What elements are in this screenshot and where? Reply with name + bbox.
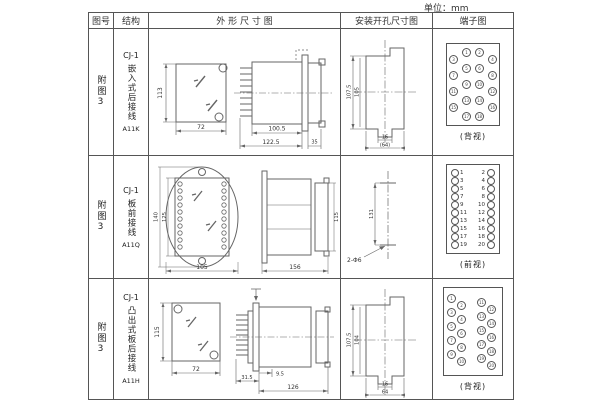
row1-code: A11K (123, 125, 140, 133)
row2-terminal-box: 1 3 5 7 9 11 13 15 17 19 2 4 6 8 10 12 1… (446, 164, 500, 254)
row2-code: A11Q (122, 241, 140, 249)
terminal-circle: 5 (462, 64, 471, 73)
terminal-circle (487, 209, 495, 217)
row2-outline-diagram: 140 125 105 156 115 (150, 157, 340, 278)
dim-height: 131 (369, 209, 375, 219)
row3-structure-cell: CJ-1 凸出式板后接线 A11H (114, 279, 149, 399)
row1-outline-diagram: 113 72 100.5 (150, 30, 340, 155)
row3-model: CJ-1 (123, 293, 139, 302)
row3-terminal-view-label: (背视) (460, 381, 486, 392)
dim-front-width: 72 (192, 366, 200, 373)
dim-outer-h: 140 (153, 212, 159, 222)
terminal-circle: 11 (449, 87, 458, 96)
row2-model: CJ-1 (123, 186, 139, 195)
row2-fig-no-cell: 附图3 (89, 156, 114, 279)
row3-code: A11H (122, 377, 140, 385)
row3-side-view (230, 289, 334, 371)
terminal-circle (451, 225, 459, 233)
terminal-circle: 15 (449, 103, 458, 112)
row1-structure-desc: 嵌入式后接线 (125, 64, 137, 121)
terminal-circle (487, 169, 495, 177)
terminal-circle: 8 (488, 71, 497, 80)
row1-side-view (234, 50, 332, 131)
row2-install-diagram: 131 2-Φ6 (342, 157, 432, 278)
terminal-circle: 16 (488, 103, 497, 112)
row1-model: CJ-1 (123, 51, 139, 60)
row2-side-view (262, 171, 329, 263)
header-fig-no: 图号 (89, 13, 114, 29)
terminal-circle: 20 (487, 361, 496, 370)
row3-outline-cell: 115 72 (149, 279, 341, 399)
terminal-circle: 2 (475, 48, 484, 57)
terminal-circle (451, 209, 459, 217)
terminal-circle: 18 (487, 347, 496, 356)
row2-terminal-cell: 1 3 5 7 9 11 13 15 17 19 2 4 6 8 10 12 1… (433, 156, 513, 279)
terminal-circle: 3 (447, 308, 456, 317)
terminal-circle: 18 (475, 112, 484, 121)
dim-outer-h: 107.5 (346, 84, 352, 99)
dim-body-len: 100.5 (268, 125, 285, 132)
terminal-circle (487, 193, 495, 201)
dim-bezel-depth: 35 (311, 139, 317, 145)
row3-structure-desc: 凸出式板后接线 (125, 306, 137, 373)
row1-outline-cell: 113 72 100.5 (149, 29, 341, 156)
document-page: 单位：mm 图号 结构 外 形 尺 寸 图 安装开孔尺寸图 端子图 附图3 CJ… (0, 0, 600, 400)
terminal-circle (487, 177, 495, 185)
terminal-circle (487, 233, 495, 241)
terminal-circle: 7 (447, 336, 456, 345)
terminal-circle (451, 201, 459, 209)
terminal-circle: 4 (457, 315, 466, 324)
row1-terminal-cell: 123456789101112131415161718 (背视) (433, 29, 513, 156)
row2-terminal-numbers-left: 1 3 5 7 9 11 13 15 17 19 (460, 169, 472, 249)
header-structure: 结构 (114, 13, 149, 29)
header-terminal: 端子图 (433, 13, 513, 29)
terminal-circle (487, 241, 495, 249)
row3-install-cell: 107.5 104 16 64 (341, 279, 433, 399)
dim-span-w: (64) (379, 142, 389, 148)
row2-front-view (166, 167, 238, 267)
row1-front-dims (163, 64, 226, 135)
header-install: 安装开孔尺寸图 (341, 13, 433, 29)
dim-slot-w: 16 (381, 134, 387, 140)
terminal-circle (451, 169, 459, 177)
row1-fig-no: 附图3 (95, 75, 108, 109)
terminal-circle: 14 (475, 96, 484, 105)
terminal-circle: 16 (487, 333, 496, 342)
terminal-circle (451, 177, 459, 185)
dim-span-w: 64 (381, 389, 387, 395)
terminal-circle (487, 225, 495, 233)
row2-terminal-numbers-right: 2 4 6 8 10 12 14 16 18 20 (473, 169, 485, 249)
terminal-circle: 10 (457, 357, 466, 366)
dim-fin-len: 31.5 (241, 375, 252, 381)
terminal-circle: 7 (449, 71, 458, 80)
terminal-circle: 17 (477, 340, 486, 349)
dim-total-len: 122.5 (262, 139, 279, 146)
terminal-circle: 2 (457, 301, 466, 310)
terminal-circle: 4 (488, 55, 497, 64)
dim-slot-w: 16 (381, 381, 387, 387)
dim-side-len: 156 (289, 264, 301, 271)
row2-structure-cell: CJ-1 板前接线 A11Q (114, 156, 149, 279)
row2-structure-desc: 板前接线 (125, 199, 137, 237)
terminal-circle: 9 (447, 350, 456, 359)
terminal-circle: 14 (487, 319, 496, 328)
row2-install-cell: 131 2-Φ6 (341, 156, 433, 279)
terminal-circle: 3 (449, 55, 458, 64)
terminal-circle (451, 217, 459, 225)
dim-holes: 2-Φ6 (347, 257, 362, 264)
row3-fig-no-cell: 附图3 (89, 279, 114, 399)
dim-front-height: 115 (154, 326, 161, 338)
row1-terminal-box: 123456789101112131415161718 (446, 43, 500, 126)
row1-structure-cell: CJ-1 嵌入式后接线 A11K (114, 29, 149, 156)
dim-inner-h: 105 (354, 87, 360, 97)
terminal-circle: 17 (462, 112, 471, 121)
terminal-circle: 12 (487, 305, 496, 314)
terminal-circle: 5 (447, 322, 456, 331)
dim-gap: 9.5 (276, 371, 284, 377)
dim-outer-h: 107.5 (346, 332, 352, 347)
row2-outline-cell: 140 125 105 156 115 (149, 156, 341, 279)
dim-front-width: 72 (197, 124, 205, 131)
row3-install-diagram: 107.5 104 16 64 (342, 281, 432, 398)
row2-side-dims (262, 183, 336, 274)
dim-body-len: 126 (287, 384, 299, 391)
spec-table: 图号 结构 外 形 尺 寸 图 安装开孔尺寸图 端子图 附图3 CJ-1 嵌入式… (88, 12, 514, 400)
terminal-circle: 9 (462, 80, 471, 89)
row2-terminal-view-label: (前视) (460, 259, 486, 270)
terminal-circle (451, 185, 459, 193)
row1-install-diagram: 107.5 105 16 (64) (342, 30, 432, 155)
terminal-circle: 13 (477, 312, 486, 321)
terminal-circle: 11 (477, 298, 486, 307)
terminal-circle (451, 193, 459, 201)
terminal-circle (487, 201, 495, 209)
terminal-circle: 1 (447, 294, 456, 303)
header-outline: 外 形 尺 寸 图 (149, 13, 341, 29)
terminal-circle (487, 185, 495, 193)
terminal-circle (451, 233, 459, 241)
terminal-circle (451, 241, 459, 249)
row1-install-cell: 107.5 105 16 (64) (341, 29, 433, 156)
terminal-circle: 19 (477, 354, 486, 363)
terminal-circle: 6 (457, 329, 466, 338)
terminal-circle (487, 217, 495, 225)
terminal-circle: 12 (488, 87, 497, 96)
terminal-circle: 6 (475, 64, 484, 73)
terminal-circle: 1 (462, 48, 471, 57)
dim-front-height: 113 (157, 87, 164, 99)
row3-front-dims (160, 303, 220, 376)
row3-terminal-box: 1234567891011121314151617181920 (443, 287, 503, 376)
row3-fig-no: 附图3 (95, 322, 108, 356)
dim-inner-h: 125 (162, 212, 168, 222)
dim-inner-h: 104 (354, 334, 360, 345)
row3-terminal-cell: 1234567891011121314151617181920 (背视) (433, 279, 513, 399)
dim-width: 105 (196, 264, 208, 271)
terminal-circle: 13 (462, 96, 471, 105)
terminal-circle: 15 (477, 326, 486, 335)
row2-fig-no: 附图3 (95, 200, 108, 234)
row3-outline-diagram: 115 72 (150, 281, 340, 398)
row1-terminal-view-label: (背视) (460, 131, 486, 142)
terminal-circle: 10 (475, 80, 484, 89)
row1-front-view (176, 64, 227, 122)
terminal-circle: 8 (457, 343, 466, 352)
dim-side-h: 115 (334, 212, 340, 222)
row1-fig-no-cell: 附图3 (89, 29, 114, 156)
row3-front-view (172, 303, 220, 361)
